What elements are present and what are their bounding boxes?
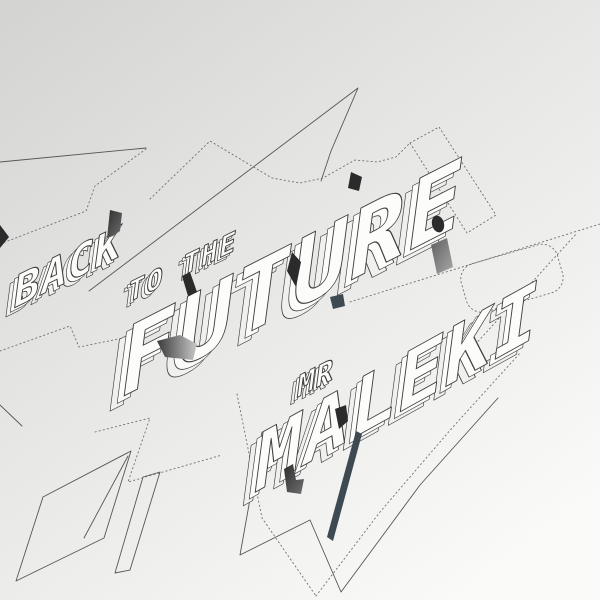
album-cover-art: BACK BACK BACK TO THE TO THE TO THE FUTU… (0, 0, 600, 600)
